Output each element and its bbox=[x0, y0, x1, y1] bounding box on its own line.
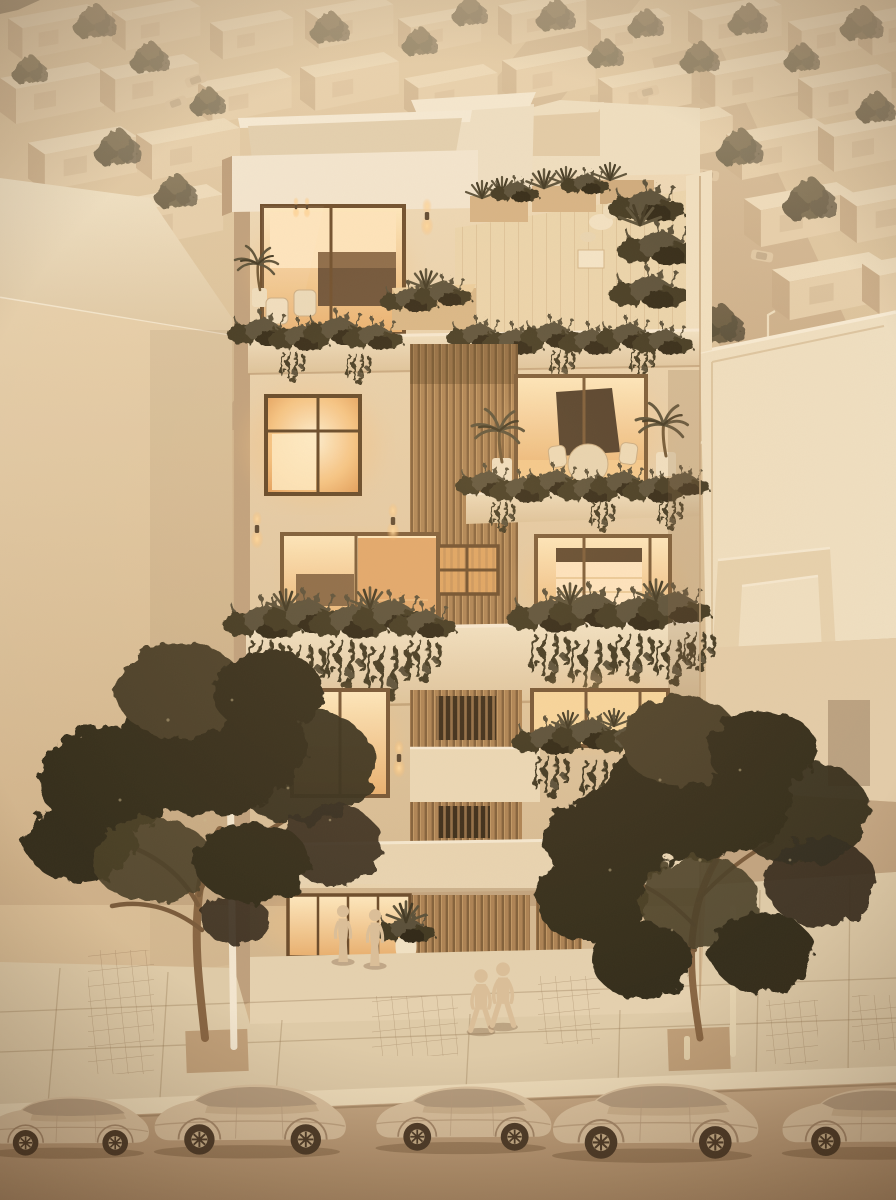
render-canvas bbox=[0, 0, 896, 1200]
film-grain bbox=[0, 0, 896, 1200]
architectural-render bbox=[0, 0, 896, 1200]
